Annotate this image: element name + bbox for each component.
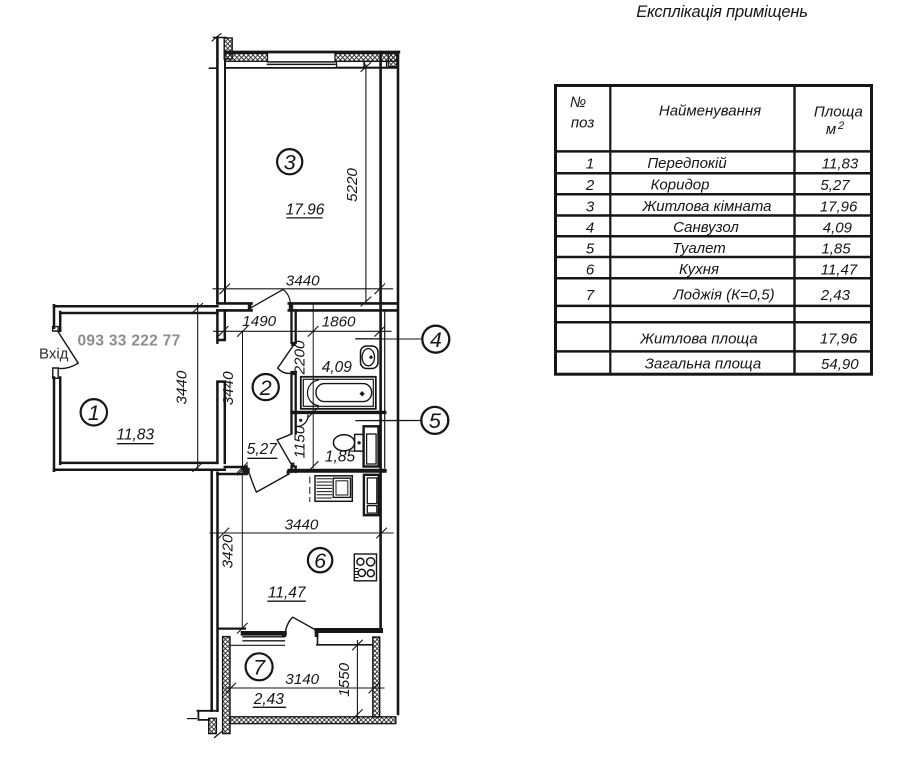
svg-text:1150: 1150 (291, 425, 308, 458)
svg-text:Площа: Площа (814, 104, 863, 121)
svg-text:№: № (570, 94, 586, 111)
svg-text:Передпокій: Передпокій (647, 155, 727, 172)
svg-text:6: 6 (314, 549, 326, 573)
svg-text:3: 3 (586, 199, 595, 216)
svg-text:2: 2 (259, 376, 272, 400)
svg-text:093 33 222 77: 093 33 222 77 (78, 333, 181, 350)
svg-text:Загальна площа: Загальна площа (645, 356, 761, 373)
svg-text:1: 1 (586, 156, 594, 173)
svg-text:Лоджія (К=0,5): Лоджія (К=0,5) (672, 287, 774, 304)
svg-text:1550: 1550 (336, 662, 353, 696)
svg-text:2,43: 2,43 (253, 691, 285, 708)
svg-text:5: 5 (429, 409, 442, 433)
svg-text:2: 2 (837, 120, 844, 132)
svg-text:5: 5 (586, 241, 595, 258)
svg-text:7: 7 (586, 287, 595, 304)
svg-text:1,85: 1,85 (325, 449, 356, 466)
svg-text:11,47: 11,47 (821, 262, 858, 279)
svg-text:4: 4 (430, 328, 442, 352)
svg-text:3140: 3140 (285, 671, 319, 688)
svg-text:3420: 3420 (219, 534, 236, 568)
svg-text:3440: 3440 (285, 517, 319, 534)
svg-text:11,47: 11,47 (268, 585, 307, 602)
svg-text:Санвузол: Санвузол (673, 219, 739, 236)
svg-text:3440: 3440 (174, 370, 191, 404)
svg-text:2,43: 2,43 (820, 287, 851, 304)
svg-text:17.96: 17.96 (286, 202, 325, 219)
svg-text:поз: поз (571, 115, 594, 132)
svg-text:11,83: 11,83 (116, 427, 154, 444)
svg-text:м: м (826, 121, 836, 138)
svg-text:5,27: 5,27 (820, 177, 850, 194)
svg-text:7: 7 (253, 656, 266, 680)
svg-text:1: 1 (88, 401, 100, 425)
svg-text:Кухня: Кухня (679, 261, 719, 278)
svg-text:Найменування: Найменування (659, 103, 761, 120)
svg-text:1490: 1490 (242, 313, 276, 330)
svg-text:2: 2 (585, 177, 595, 194)
svg-text:4: 4 (586, 220, 594, 237)
svg-text:Вхід: Вхід (39, 346, 69, 363)
svg-text:3440: 3440 (286, 272, 320, 289)
svg-text:Коридор: Коридор (651, 177, 710, 194)
svg-text:Житлова площа: Житлова площа (639, 331, 757, 348)
svg-text:1860: 1860 (322, 313, 356, 330)
svg-text:Житлова кімната: Житлова кімната (641, 198, 771, 215)
svg-text:4,09: 4,09 (823, 220, 853, 237)
svg-text:5,27: 5,27 (247, 441, 279, 458)
svg-text:54,90: 54,90 (821, 356, 859, 373)
svg-text:3440: 3440 (220, 371, 237, 405)
svg-text:2200: 2200 (291, 340, 308, 375)
svg-text:4,09: 4,09 (322, 359, 353, 376)
svg-text:5220: 5220 (344, 168, 361, 202)
svg-text:Експлікація приміщень: Експлікація приміщень (636, 3, 808, 21)
svg-text:3: 3 (284, 150, 296, 174)
svg-text:11,83: 11,83 (822, 156, 859, 173)
svg-text:Туалет: Туалет (672, 240, 725, 257)
svg-text:1,85: 1,85 (821, 241, 851, 258)
svg-text:17,96: 17,96 (820, 199, 858, 216)
svg-text:6: 6 (586, 262, 595, 279)
svg-text:17,96: 17,96 (820, 331, 858, 348)
